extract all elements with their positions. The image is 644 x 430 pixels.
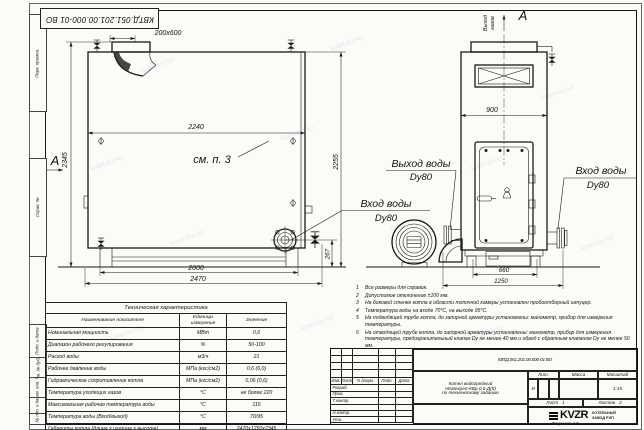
col-docnum: N докум. (353, 378, 379, 386)
hinge-icon (529, 200, 535, 208)
svg-text:см. п. 3: см. п. 3 (193, 154, 231, 166)
lit-value: И (528, 379, 538, 399)
revision-grid: Изм. Лист N докум. Подп. Дата Разраб. Пр… (331, 349, 413, 424)
water-inlet-label: Вход воды Dy80 (291, 198, 430, 240)
product-name: Котел водогрейный Heatexpert-КВр-0,6-Д(К… (413, 371, 528, 404)
note-item: 5На подводящей трубе котла, до запорной … (356, 315, 636, 328)
mass-value (559, 379, 598, 399)
note-item: 1Все размеры для справок. (356, 285, 636, 292)
empty-cell (413, 404, 528, 424)
table-row: Максимальная рабочая температура воды°С1… (46, 400, 287, 412)
table-row: Гидравлическое сопротивление котлаМПа (к… (46, 376, 287, 388)
dim-base-inner: 2000 (187, 265, 204, 272)
hinge-icon (529, 226, 535, 234)
row-utv: Утв. (331, 417, 379, 423)
see-note: см. п. 3 (193, 141, 269, 166)
title-block: Изм. Лист N докум. Подп. Дата Разраб. Пр… (330, 348, 638, 425)
note-item: 6На отводящей трубе котла, до запорной а… (356, 330, 636, 350)
company-cell: KVZR КОТЕЛЬНЫЙ ЗАВОД РЭП (528, 407, 637, 424)
furnace-door (475, 142, 535, 248)
dim-base-outer: 1250 (494, 278, 508, 285)
table-row: Температура уходящих газов°Сне более 220 (46, 388, 287, 400)
lit-header: Лит. (528, 371, 559, 379)
side-bracket (305, 206, 312, 213)
valve-icon (287, 40, 294, 52)
svg-text:Dy80: Dy80 (375, 213, 398, 224)
dim-width: 2240 (187, 124, 204, 131)
mark-icon (99, 137, 296, 207)
dim-height-right: 2255 (333, 154, 340, 171)
tech-table: Техническая характеристика Наименование … (45, 302, 287, 430)
svg-text:Dy80: Dy80 (587, 180, 610, 191)
kvzr-logo-text: KVZR (560, 410, 588, 421)
svg-text:Вход воды: Вход воды (576, 165, 627, 177)
table-row: Рабочее давление водыМПа (кгс/см2)0,6 (6… (46, 364, 287, 376)
sheets-cell: Листов 2 (583, 399, 637, 407)
dim-base-inner: 660 (499, 267, 510, 274)
lit-cell (538, 379, 548, 399)
format-note: Формат А3 (505, 423, 625, 428)
svg-text:Вход воды: Вход воды (361, 198, 412, 210)
water-inlet-label-front: Вход воды Dy80 (558, 165, 637, 229)
boiler-side-view: 200x600 2240 2345 2255 267 2000 2470 (47, 30, 430, 287)
svg-text:А: А (50, 153, 60, 168)
dim-flange-height: 267 (325, 248, 332, 260)
tech-table-header: Наименование показателя Единицы измерени… (46, 314, 287, 328)
sheet-cell: Лист 1 (528, 399, 583, 407)
table-row: Номинальная мощностьМВт0,6 (46, 328, 287, 340)
hinge-icon (529, 175, 535, 183)
boiler-front-view: Выход газов А 900 (366, 8, 637, 289)
tech-table-title: Техническая характеристика (46, 303, 287, 314)
dim-base-outer: 2470 (189, 276, 206, 283)
drawing-sheet: kotel-kvr.kz kotel-kvr.kz kotel-kvr.kz k… (0, 0, 644, 430)
blower-fan (392, 220, 462, 267)
flue-gas-label: Выход газов (483, 15, 504, 31)
svg-text:Выход воды: Выход воды (391, 158, 450, 170)
base-frame (465, 250, 543, 267)
table-row: Габариты котла (длина х ширина х высота)… (46, 424, 287, 430)
dim-height-left: 2345 (62, 152, 69, 169)
svg-text:газов: газов (490, 16, 496, 30)
col-izm: Изм. (331, 378, 342, 386)
svg-text:Выход: Выход (483, 15, 489, 31)
company-name: КОТЕЛЬНЫЙ ЗАВОД РЭП (592, 411, 616, 421)
note-item: 2Допустимое отклонение ±100 мм. (356, 293, 636, 300)
mass-header: Масса (559, 371, 598, 379)
dim-front-width: 900 (486, 107, 498, 114)
note-item: 3На боковой стенке котла в области топоч… (356, 300, 636, 307)
scale-value: 1:15 (598, 379, 637, 399)
table-row: Расход водым3/ч21 (46, 352, 287, 364)
svg-text:Dy80: Dy80 (410, 172, 433, 183)
lit-cell (549, 379, 559, 399)
table-row: Диапазон рабочего регулирования%50-100 (46, 340, 287, 352)
col-data: Дата (396, 378, 413, 386)
kvzr-logo-icon (549, 412, 558, 420)
inlet-flange-front (547, 228, 567, 248)
col-podp: Подп. (379, 378, 396, 386)
valve-icon (537, 47, 556, 67)
view-letter: А (518, 8, 528, 23)
dim-duct: 200x600 (154, 30, 182, 37)
flue-duct (112, 42, 156, 76)
doc-number: КВТД.051.201.00.000-01 ВО (413, 349, 637, 371)
col-list: Лист (342, 378, 353, 386)
scale-header: Масштаб (598, 371, 637, 379)
table-row: Температура воды (Вход/выход)°С70/95 (46, 412, 287, 424)
note-item: 4Температура воды на входе 70°С, на выхо… (356, 308, 636, 315)
section-mark: А (47, 153, 63, 170)
